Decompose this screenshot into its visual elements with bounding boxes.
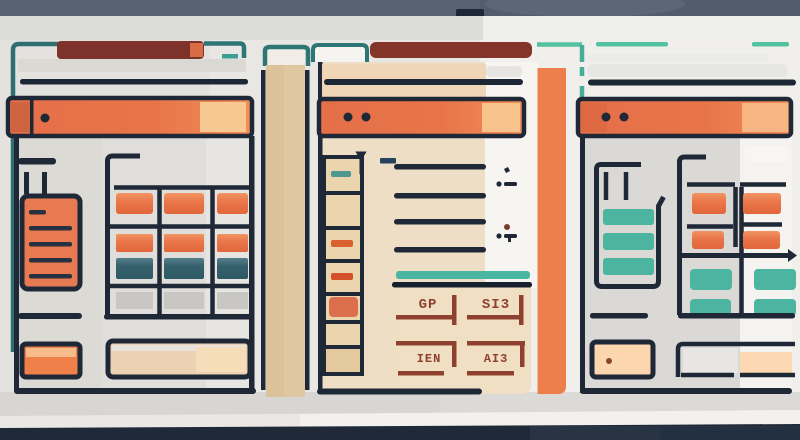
svg-text:AI3: AI3 [484,352,509,366]
svg-text:IEN: IEN [417,352,442,366]
svg-text:SI3: SI3 [482,297,510,313]
svg-text:GP: GP [419,297,438,313]
